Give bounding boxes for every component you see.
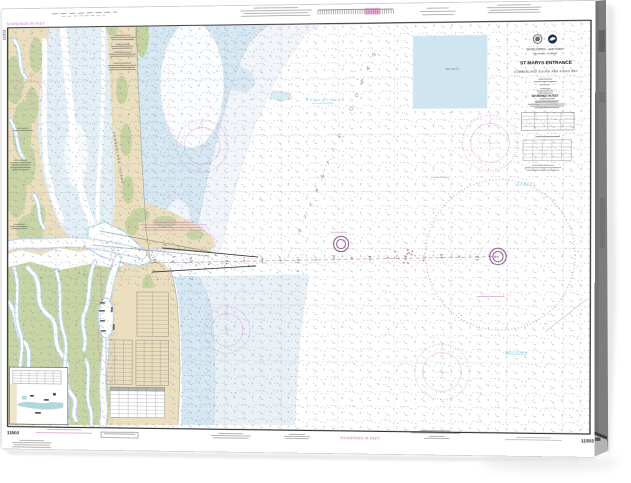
svg-text:ST MARYS ENTRANCE: ST MARYS ENTRANCE xyxy=(520,60,572,66)
svg-text:(see note A): (see note A) xyxy=(445,68,458,71)
svg-text:+: + xyxy=(480,392,482,396)
svg-text:+: + xyxy=(550,387,552,391)
svg-text:+: + xyxy=(430,117,432,121)
svg-text:SOUNDINGS IN FEET: SOUNDINGS IN FEET xyxy=(7,22,45,27)
svg-text:+: + xyxy=(360,347,362,351)
svg-text:GEORGIA — FLORIDA: GEORGIA — FLORIDA xyxy=(533,52,557,55)
svg-text:+: + xyxy=(250,97,252,101)
svg-text:11503: 11503 xyxy=(581,438,594,443)
svg-text:+: + xyxy=(545,207,547,211)
svg-text:SOUNDINGS IN FEET: SOUNDINGS IN FEET xyxy=(340,436,380,441)
svg-text:+: + xyxy=(260,357,262,361)
svg-text:SOUNDINGS IN FEET: SOUNDINGS IN FEET xyxy=(531,94,559,98)
svg-text:11503: 11503 xyxy=(7,430,20,435)
svg-text:+: + xyxy=(300,307,302,311)
svg-text:11503: 11503 xyxy=(2,30,6,41)
svg-text:CUMBERLAND SOUND AND KINGS BAY: CUMBERLAND SOUND AND KINGS BAY xyxy=(514,69,578,74)
svg-text:UNITED STATES — EAST COAST: UNITED STATES — EAST COAST xyxy=(527,48,565,52)
svg-text:+: + xyxy=(260,197,262,201)
svg-text:+: + xyxy=(330,157,332,161)
svg-text:+: + xyxy=(390,387,392,391)
svg-text:+: + xyxy=(300,387,302,391)
svg-text:+: + xyxy=(470,317,472,321)
